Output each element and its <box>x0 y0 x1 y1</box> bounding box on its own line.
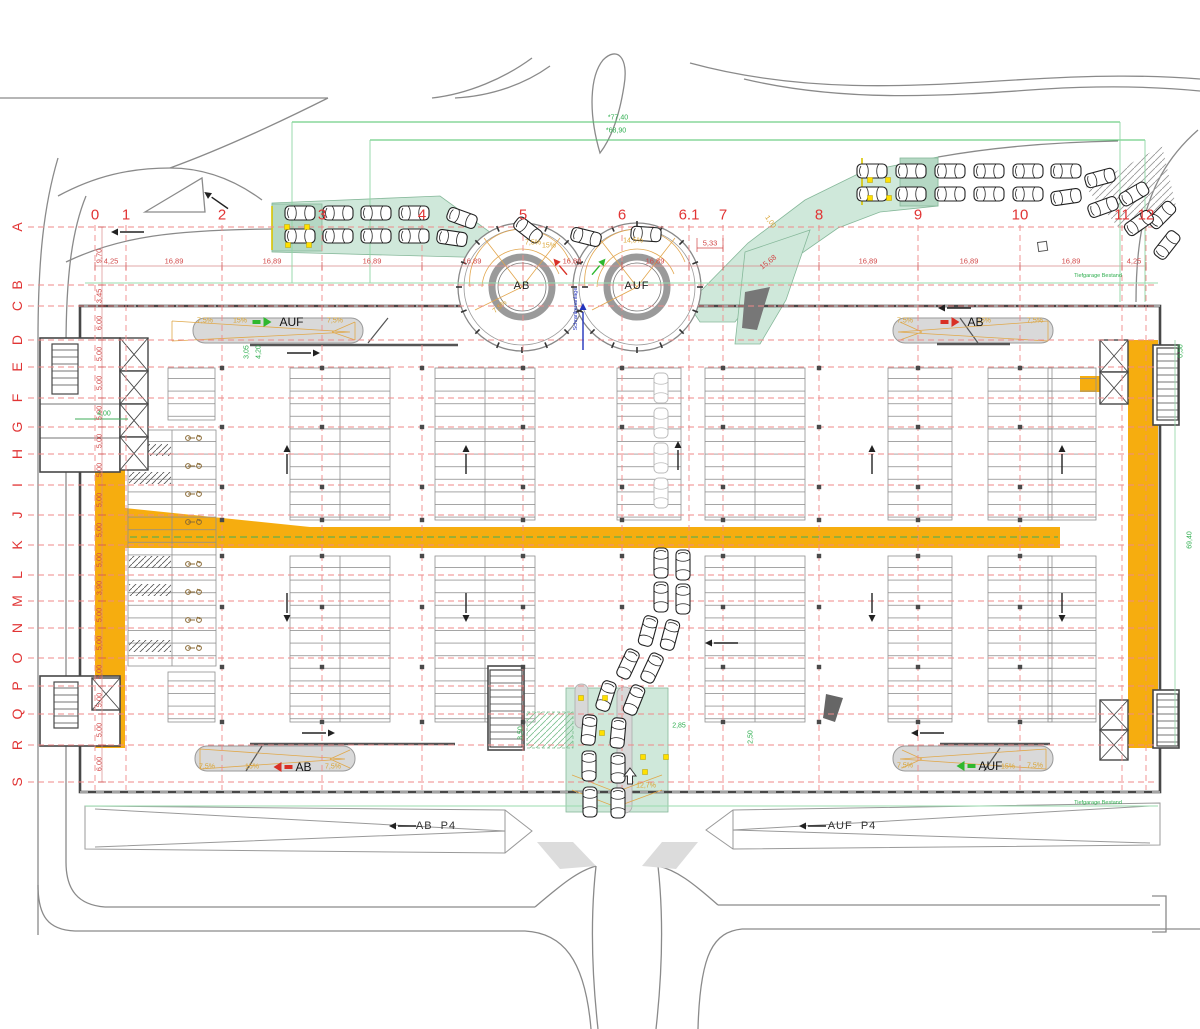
ghost-car-icon <box>654 408 668 438</box>
car-icon <box>974 164 1004 178</box>
car-icon <box>935 187 965 201</box>
detector-marker <box>664 755 669 760</box>
detector-marker <box>285 225 290 230</box>
car-icon <box>1152 229 1182 261</box>
floor-plan-drawing <box>0 0 1200 1029</box>
direction-arrow <box>202 189 230 211</box>
p4-entry-wedge <box>706 803 1160 849</box>
detector-marker <box>868 196 873 201</box>
car-icon <box>582 751 596 781</box>
car-icon <box>581 714 598 745</box>
direction-arrow <box>287 350 320 357</box>
detector-marker <box>579 696 584 701</box>
car-icon <box>857 164 887 178</box>
car-icon <box>399 229 429 243</box>
detector-marker <box>886 178 891 183</box>
car-icon <box>323 206 353 220</box>
car-icon <box>285 206 315 220</box>
detector-marker <box>307 243 312 248</box>
car-icon <box>1013 164 1043 178</box>
detector-marker <box>305 225 310 230</box>
car-icon <box>615 647 640 680</box>
car-icon <box>896 164 926 178</box>
car-icon <box>285 229 315 243</box>
car-icon <box>639 651 664 684</box>
direction-arrow <box>302 730 335 737</box>
direction-arrow <box>284 445 291 474</box>
car-icon <box>654 548 668 578</box>
detector-marker <box>641 755 646 760</box>
direction-arrow <box>111 229 144 236</box>
direction-arrow <box>869 445 876 474</box>
direction-arrow <box>911 730 944 737</box>
car-icon <box>631 226 662 242</box>
detector-marker <box>887 196 892 201</box>
detector-marker <box>603 696 608 701</box>
car-icon <box>570 227 602 248</box>
car-icon <box>659 619 680 652</box>
car-icon <box>935 164 965 178</box>
detector-marker <box>286 243 291 248</box>
car-icon <box>637 615 658 648</box>
ghost-car-icon <box>654 478 668 508</box>
lane-junction-wedge <box>823 694 843 722</box>
direction-arrow <box>284 593 291 622</box>
car-icon <box>399 206 429 220</box>
car-icon <box>611 753 625 783</box>
car-icon <box>654 582 668 612</box>
stair-icon <box>52 344 78 394</box>
detector-marker <box>643 770 648 775</box>
car-icon <box>583 787 597 817</box>
car-icon <box>1050 188 1082 206</box>
detector-marker <box>600 731 605 736</box>
ghost-car-icon <box>654 443 668 473</box>
car-icon <box>1051 164 1081 178</box>
car-icon <box>361 206 391 220</box>
detector-marker <box>868 178 873 183</box>
ghost-car-icon <box>654 373 668 403</box>
car-icon <box>676 584 690 614</box>
car-icon <box>896 187 926 201</box>
car-icon <box>323 229 353 243</box>
floor-plan: 01234566.1789101112A9,70B3,45C6,00D5,00E… <box>0 0 1200 1029</box>
stair-icon <box>54 682 78 728</box>
car-icon <box>676 550 690 580</box>
direction-arrow <box>869 593 876 622</box>
car-icon <box>361 229 391 243</box>
stair-icon <box>490 670 522 747</box>
car-icon <box>1013 187 1043 201</box>
car-icon <box>611 788 625 818</box>
car-icon <box>974 187 1004 201</box>
car-icon <box>610 717 627 748</box>
p4-exit-wedge <box>85 806 532 853</box>
